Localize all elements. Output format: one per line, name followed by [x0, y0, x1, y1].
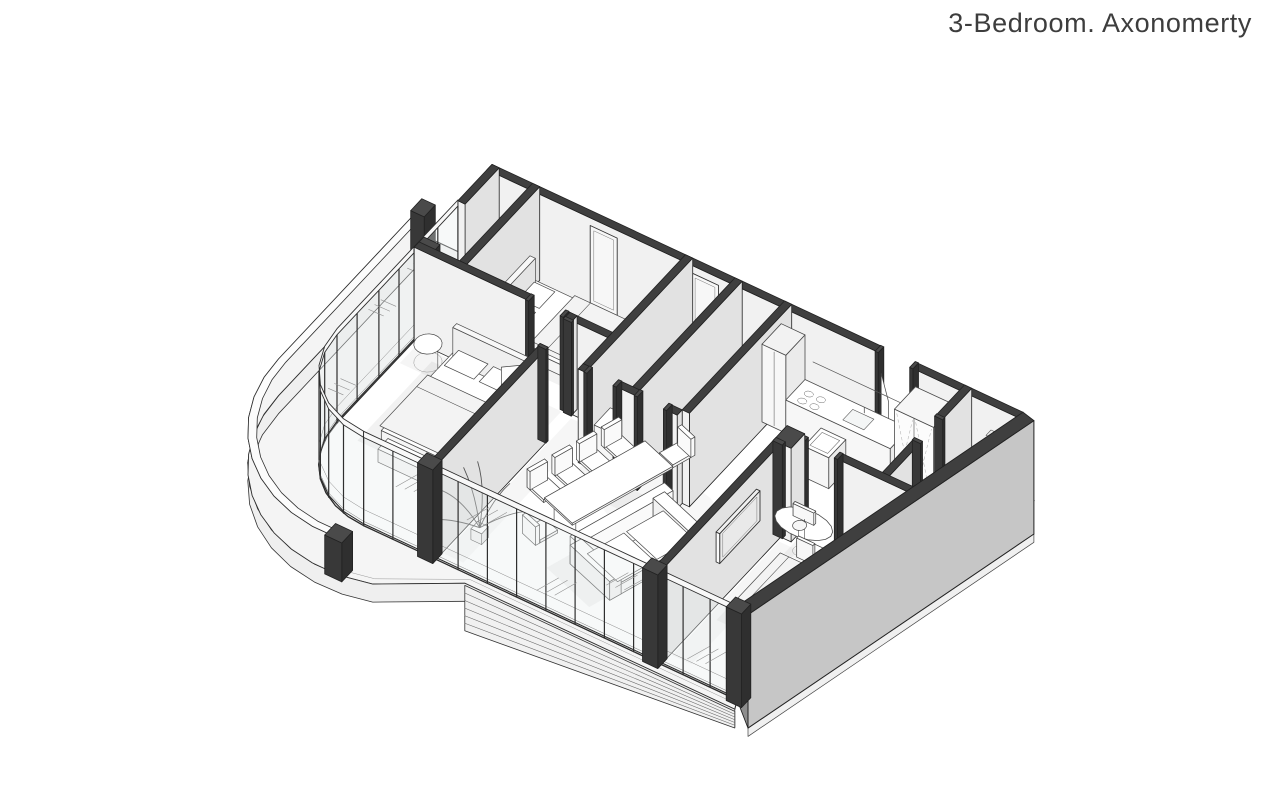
page: 3-Bedroom. Axonomerty — [0, 0, 1266, 802]
axonometric-drawing — [0, 0, 1266, 802]
floorplan-svg — [0, 0, 1266, 802]
